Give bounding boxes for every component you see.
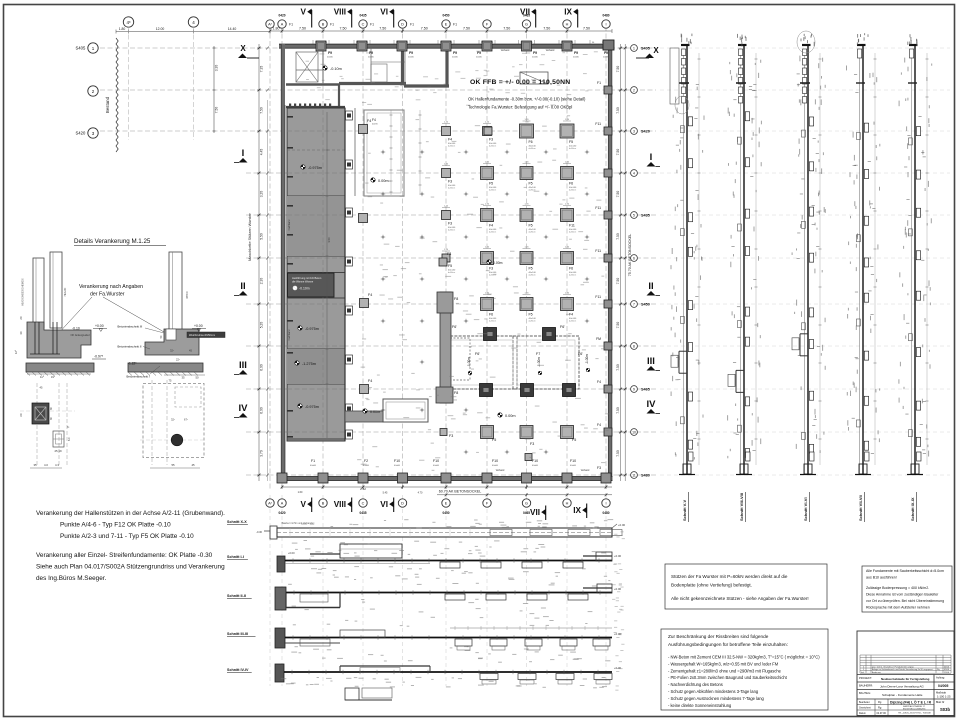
svg-text:VIII: VIII xyxy=(334,500,346,509)
svg-text:S03b: S03b xyxy=(940,707,950,712)
svg-text:7.50: 7.50 xyxy=(616,107,620,114)
svg-text:Schnitt II-II: Schnitt II-II xyxy=(227,594,246,598)
svg-text:F6: F6 xyxy=(569,267,573,271)
svg-text:50: 50 xyxy=(195,376,199,380)
svg-text:F6': F6' xyxy=(452,325,457,329)
svg-text:BAUHERR:: BAUHERR: xyxy=(859,684,873,688)
svg-text:Verband: Verband xyxy=(581,469,590,472)
svg-text:A: A xyxy=(281,23,284,27)
svg-text:9: 9 xyxy=(633,388,635,392)
svg-text:Verankerung aller Einzel- Stre: Verankerung aller Einzel- Streifenfundam… xyxy=(36,552,213,559)
svg-text:Anlage im Grubenbereich und De: Anlage im Grubenbereich und Details Vera… xyxy=(872,668,934,671)
svg-text:7.50: 7.50 xyxy=(616,66,620,73)
svg-text:F6: F6 xyxy=(569,182,573,186)
svg-text:vor Ort zu überprüfen. Bei nic: vor Ort zu überprüfen. Bei nicht Überein… xyxy=(866,599,944,603)
svg-text:B: B xyxy=(322,502,325,506)
svg-text:F3: F3 xyxy=(489,138,493,142)
svg-text:F5: F5 xyxy=(529,313,533,317)
svg-text:Schnitt IX-IX: Schnitt IX-IX xyxy=(910,497,915,521)
svg-text:d=80cm: d=80cm xyxy=(489,145,497,147)
svg-text:F1: F1 xyxy=(311,459,315,463)
svg-text:IPB300: IPB300 xyxy=(187,291,189,299)
svg-text:F4: F4 xyxy=(489,224,493,228)
svg-text:5.50: 5.50 xyxy=(260,233,264,240)
svg-text:-0.30: -0.30 xyxy=(256,530,262,534)
svg-text:+0.00: +0.00 xyxy=(618,523,626,527)
svg-text:F6: F6 xyxy=(489,313,493,317)
svg-text:F4: F4 xyxy=(597,380,601,384)
svg-text:F9: F9 xyxy=(574,51,578,55)
svg-text:Schnitt V-V: Schnitt V-V xyxy=(682,500,687,521)
svg-text:14.40: 14.40 xyxy=(228,27,237,31)
svg-text:Schnitt III-III: Schnitt III-III xyxy=(227,632,248,636)
svg-text:Schnitt VII-VII: Schnitt VII-VII xyxy=(858,495,863,521)
svg-text:die Wanne Wanne: die Wanne Wanne xyxy=(292,280,314,284)
svg-text:40x80: 40x80 xyxy=(452,56,459,58)
svg-text:V: V xyxy=(301,7,307,16)
svg-text:-0.10m: -0.10m xyxy=(330,67,342,71)
svg-text:d=80cm: d=80cm xyxy=(569,148,577,150)
svg-text:F5: F5 xyxy=(489,182,493,186)
svg-text:d=80cm: d=80cm xyxy=(529,320,537,322)
svg-text:7.50: 7.50 xyxy=(379,27,386,31)
svg-text:F9: F9 xyxy=(369,51,373,55)
svg-text:40x80: 40x80 xyxy=(532,465,539,467)
svg-text:-0.975m: -0.975m xyxy=(308,166,322,170)
svg-text:H: H xyxy=(566,502,569,506)
svg-text:+0.00: +0.00 xyxy=(194,324,203,328)
svg-text:A: A xyxy=(281,502,284,506)
svg-text:7.50: 7.50 xyxy=(215,107,219,114)
svg-text:II: II xyxy=(240,281,245,292)
svg-text:VII: VII xyxy=(530,508,540,517)
svg-text:III: III xyxy=(647,356,655,367)
svg-text:0480: 0480 xyxy=(602,14,609,18)
svg-text:6.00: 6.00 xyxy=(260,407,264,414)
svg-text:Zulässige Bodenpressung = 400: Zulässige Bodenpressung = 400 kN/m2. xyxy=(866,586,929,590)
svg-text:F6': F6' xyxy=(475,352,480,356)
svg-text:d=80cm: d=80cm xyxy=(489,189,497,191)
svg-text:- Wassergehalt W=165kg/m3, w/z: - Wassergehalt W=165kg/m3, w/z=0.55 mit … xyxy=(668,661,779,666)
svg-text:Schnitt X-X: Schnitt X-X xyxy=(227,520,247,524)
svg-text:F5: F5 xyxy=(448,264,452,268)
svg-text:I: I xyxy=(242,148,245,159)
svg-text:d=80cm: d=80cm xyxy=(448,145,456,147)
svg-text:Neubau Gebäude für Fertigstell: Neubau Gebäude für Fertigstellung xyxy=(881,677,930,681)
svg-text:III: III xyxy=(239,360,247,371)
svg-text:d=80cm: d=80cm xyxy=(529,274,537,276)
svg-text:Alle Fundamente mit Sauberkeit: Alle Fundamente mit Sauberkeitsschicht d… xyxy=(866,569,944,573)
svg-text:VII: VII xyxy=(520,7,530,16)
svg-text:Punkte A/2-3 und 7-11 - Typ F5: Punkte A/2-3 und 7-11 - Typ F5 OK Platte… xyxy=(60,533,194,540)
svg-text:OK Hallenfundamente -0.30m bzw: OK Hallenfundamente -0.30m bzw. +/-0.00(… xyxy=(468,97,586,102)
svg-text:0.00m: 0.00m xyxy=(493,261,503,265)
svg-text:- keine direkte Sonneneinstrah: - keine direkte Sonneneinstrahlung xyxy=(668,703,732,708)
svg-text:Auftrag: Auftrag xyxy=(936,676,945,680)
svg-text:30: 30 xyxy=(19,331,23,335)
svg-text:G: G xyxy=(525,23,528,27)
svg-text:D: D xyxy=(401,502,404,506)
svg-text:Bodenplatte (ohne Vertiefung): Bodenplatte (ohne Vertiefung) befestigt. xyxy=(671,583,752,588)
svg-text:Betonierabschnitt II: Betonierabschnitt II xyxy=(118,345,142,349)
svg-text:HEA240: HEA240 xyxy=(64,287,67,296)
svg-text:Technologie Fa.Wurster: Befest: Technologie Fa.Wurster: Befestigung auf … xyxy=(468,105,572,110)
svg-text:3.50: 3.50 xyxy=(327,237,331,243)
svg-text:d=80cm: d=80cm xyxy=(448,187,456,189)
svg-text:F2: F2 xyxy=(364,459,368,463)
svg-text:7.50: 7.50 xyxy=(503,27,510,31)
svg-text:- Schutz gegen Abkühlen mindes: - Schutz gegen Abkühlen mindestens 3-Tag… xyxy=(668,689,759,694)
svg-text:F8: F8 xyxy=(454,297,458,301)
svg-text:-0.10m: -0.10m xyxy=(299,287,310,291)
svg-text:1-100 1-25: 1-100 1-25 xyxy=(937,695,951,699)
svg-text:32⁵: 32⁵ xyxy=(170,349,174,353)
svg-text:40x80: 40x80 xyxy=(603,56,610,58)
svg-text:F1: F1 xyxy=(330,23,334,27)
svg-text:7.50: 7.50 xyxy=(463,27,470,31)
svg-text:F3: F3 xyxy=(447,252,451,256)
svg-text:Stützen der Fa Wurster mit P=6: Stützen der Fa Wurster mit P=60kN werden… xyxy=(671,574,788,579)
svg-text:40x80: 40x80 xyxy=(476,56,483,58)
svg-text:Datum: Datum xyxy=(859,712,866,715)
svg-text:7.50: 7.50 xyxy=(616,364,620,371)
svg-text:7: 7 xyxy=(633,303,635,307)
svg-text:S420: S420 xyxy=(76,131,86,136)
svg-text:25,19: 25,19 xyxy=(55,449,62,453)
svg-text:04/005: 04/005 xyxy=(938,684,948,688)
svg-text:Weichzulrste Ø150mm: Weichzulrste Ø150mm xyxy=(189,333,215,337)
svg-text:S420: S420 xyxy=(641,130,650,134)
svg-text:4ˣ: 4ˣ xyxy=(127,20,132,25)
svg-text:F4: F4 xyxy=(368,379,372,383)
svg-text:F1: F1 xyxy=(289,23,293,27)
svg-text:S465: S465 xyxy=(641,388,650,392)
svg-text:F11: F11 xyxy=(595,206,601,210)
svg-text:Änderung: Änderung xyxy=(872,671,881,674)
svg-text:04.07.06: 04.07.06 xyxy=(877,712,887,715)
svg-text:Betonierabschnitt I: Betonierabschnitt I xyxy=(127,375,150,379)
svg-text:V: V xyxy=(301,500,307,509)
svg-text:40x80: 40x80 xyxy=(492,465,499,467)
svg-text:0480: 0480 xyxy=(602,511,609,515)
svg-text:12/06: 12/06 xyxy=(944,672,950,674)
svg-text:40x80: 40x80 xyxy=(532,56,539,58)
svg-text:E: E xyxy=(445,502,448,506)
svg-text:Betonierabschnitt III: Betonierabschnitt III xyxy=(118,325,143,329)
svg-text:3.30: 3.30 xyxy=(215,65,219,72)
svg-text:F11: F11 xyxy=(569,224,575,228)
svg-text:IV: IV xyxy=(647,399,657,410)
svg-text:F10: F10 xyxy=(433,459,439,463)
svg-text:Zur Beschränkung der Rissbreit: Zur Beschränkung der Rissbreiten sind fo… xyxy=(668,634,769,639)
svg-text:60.70 AK BETONSOCKEL: 60.70 AK BETONSOCKEL xyxy=(439,490,481,494)
svg-text:Schalplan - Fundamente Halle: Schalplan - Fundamente Halle xyxy=(882,693,923,697)
svg-text:5.20: 5.20 xyxy=(260,322,264,329)
svg-text:3⁵: 3⁵ xyxy=(67,425,69,429)
svg-text:VI: VI xyxy=(380,500,388,509)
svg-text:Ind.: Ind. xyxy=(861,672,865,674)
svg-text:John Deere-Lanz Verwaltung AG: John Deere-Lanz Verwaltung AG xyxy=(880,685,924,689)
svg-text:-0.975m: -0.975m xyxy=(305,405,319,409)
svg-text:7.50: 7.50 xyxy=(616,233,620,240)
svg-text:F11: F11 xyxy=(595,249,601,253)
svg-text:F9: F9 xyxy=(453,51,457,55)
svg-text:4: 4 xyxy=(633,172,635,176)
svg-text:1: 1 xyxy=(633,47,635,51)
svg-text:des Ing.Büros M.Seeger.: des Ing.Büros M.Seeger. xyxy=(36,575,107,582)
svg-text:75.70 AK BETONSOCKEL: 75.70 AK BETONSOCKEL xyxy=(628,234,632,276)
svg-text:Verband: Verband xyxy=(496,469,505,472)
svg-text:d=80cm: d=80cm xyxy=(529,231,537,233)
svg-text:F9: F9 xyxy=(604,51,608,55)
svg-text:2.30: 2.30 xyxy=(260,278,264,285)
svg-text:31⁵: 31⁵ xyxy=(51,375,55,379)
svg-text:S405: S405 xyxy=(76,46,86,51)
svg-text:7.50: 7.50 xyxy=(421,27,428,31)
svg-text:B: B xyxy=(322,23,325,27)
svg-text:11⁵: 11⁵ xyxy=(40,375,44,379)
svg-text:F1: F1 xyxy=(410,23,414,27)
svg-text:11: 11 xyxy=(632,474,636,478)
svg-text:F4: F4 xyxy=(569,313,573,317)
svg-text:32⁵: 32⁵ xyxy=(171,418,175,422)
svg-text:0.00m: 0.00m xyxy=(505,414,516,418)
svg-text:+0.00: +0.00 xyxy=(614,587,622,591)
svg-text:F5: F5 xyxy=(569,140,573,144)
svg-text:Fachband: Fachband xyxy=(288,329,291,340)
svg-text:VIII: VIII xyxy=(334,7,346,16)
svg-text:0420: 0420 xyxy=(278,511,285,515)
svg-text:FM: FM xyxy=(596,337,601,341)
svg-text:5.45: 5.45 xyxy=(383,492,388,495)
svg-text:F11: F11 xyxy=(595,122,601,126)
svg-text:BAUTEIL:: BAUTEIL: xyxy=(859,691,871,695)
svg-text:F1: F1 xyxy=(597,81,601,85)
svg-text:F11: F11 xyxy=(595,295,601,299)
svg-text:HEA300/HEB300/HEM300: HEA300/HEB300/HEM300 xyxy=(22,278,25,306)
svg-text:S435: S435 xyxy=(641,214,650,218)
svg-text:40x80: 40x80 xyxy=(368,56,375,58)
svg-text:10: 10 xyxy=(632,431,636,435)
svg-text:40x80: 40x80 xyxy=(433,465,440,467)
svg-text:7.50: 7.50 xyxy=(583,27,590,31)
svg-text:-0.97⁵: -0.97⁵ xyxy=(94,355,104,359)
svg-text:Schnitt IV-IV: Schnitt IV-IV xyxy=(227,668,249,672)
svg-text:d=80cm: d=80cm xyxy=(569,231,577,233)
svg-text:-1.00m: -1.00m xyxy=(585,354,589,364)
svg-text:PROJEKT:: PROJEKT: xyxy=(859,676,872,680)
svg-text:55: 55 xyxy=(171,463,175,467)
svg-text:- Schutz gegen Austrocknen min: - Schutz gegen Austrocknen mindestens 7-… xyxy=(668,696,765,701)
svg-text:Bestand: Bestand xyxy=(105,96,110,113)
svg-text:F7: F7 xyxy=(536,352,540,356)
svg-text:Gezeichnet: Gezeichnet xyxy=(859,706,871,709)
svg-text:-0.10: -0.10 xyxy=(72,327,80,331)
svg-text:45: 45 xyxy=(191,463,195,467)
svg-text:40x80: 40x80 xyxy=(327,56,334,58)
svg-text:Verband: Verband xyxy=(501,49,510,52)
svg-text:OK AnkergLatte I: OK AnkergLatte I xyxy=(71,333,91,337)
svg-text:Details Verankerung M.1.25: Details Verankerung M.1.25 xyxy=(74,238,151,245)
svg-text:D: D xyxy=(401,23,404,27)
svg-text:20: 20 xyxy=(19,316,23,320)
svg-text:F10: F10 xyxy=(532,459,538,463)
svg-text:7.50: 7.50 xyxy=(340,27,347,31)
svg-text:0.00m: 0.00m xyxy=(378,179,389,183)
svg-text:4.3: 4.3 xyxy=(55,463,59,467)
svg-text:TEL.-(0821)-4500737/56 - 70630: TEL.-(0821)-4500737/56 - 7063048 xyxy=(898,713,932,715)
svg-text:Rg: Rg xyxy=(878,705,882,709)
svg-text:1.60: 1.60 xyxy=(298,491,303,494)
svg-text:7.50: 7.50 xyxy=(260,107,264,114)
svg-text:d=80cm: d=80cm xyxy=(448,272,456,274)
svg-text:S405: S405 xyxy=(641,47,650,51)
svg-text:+0.00: +0.00 xyxy=(614,554,622,558)
svg-text:-1.22⁵: -1.22⁵ xyxy=(128,362,137,366)
svg-text:Punkte A/4-6 - Typ F12 OK Plat: Punkte A/4-6 - Typ F12 OK Platte -0.10 xyxy=(60,522,171,529)
svg-text:7.50: 7.50 xyxy=(616,278,620,285)
svg-text:Verankerung nach Angaben: Verankerung nach Angaben xyxy=(79,284,143,290)
svg-text:F9: F9 xyxy=(533,51,537,55)
svg-text:7.50: 7.50 xyxy=(616,191,620,198)
svg-text:Fachband: Fachband xyxy=(288,219,291,230)
svg-text:Schnitt VI-VI: Schnitt VI-VI xyxy=(803,497,808,521)
svg-text:0435: 0435 xyxy=(359,14,366,18)
svg-text:Rücksprache mit dem Aufsteller: Rücksprache mit dem Aufsteller nehmen xyxy=(866,606,930,610)
svg-text:35: 35 xyxy=(181,376,185,380)
svg-text:7.50: 7.50 xyxy=(616,450,620,457)
svg-text:Blatt Nr: Blatt Nr xyxy=(936,701,945,704)
svg-text:- PE-Folien 2x0.3mm zwischen B: - PE-Folien 2x0.3mm zwischen Baugrund un… xyxy=(668,675,788,680)
svg-text:60: 60 xyxy=(19,413,23,417)
svg-text:F1: F1 xyxy=(370,23,374,27)
svg-text:40x80: 40x80 xyxy=(310,465,317,467)
svg-text:67⁵: 67⁵ xyxy=(184,418,188,422)
svg-text:40x80: 40x80 xyxy=(394,465,401,467)
svg-text:4.0: 4.0 xyxy=(44,463,48,467)
svg-text:-1.275m: -1.275m xyxy=(302,362,316,366)
svg-text:F5: F5 xyxy=(529,224,533,228)
svg-text:F10: F10 xyxy=(492,459,498,463)
svg-text:II: II xyxy=(648,281,653,292)
svg-text:2: 2 xyxy=(633,89,635,93)
svg-text:2.42: 2.42 xyxy=(360,487,366,491)
svg-text:12⁵: 12⁵ xyxy=(14,350,18,354)
svg-text:OK FFB = +/- 0.00 = 110,50NN: OK FFB = +/- 0.00 = 110,50NN xyxy=(470,79,570,86)
svg-text:3.70: 3.70 xyxy=(260,450,264,457)
svg-text:6.00: 6.00 xyxy=(260,364,264,371)
svg-text:40x90: 40x90 xyxy=(372,124,379,126)
svg-text:7.50: 7.50 xyxy=(616,322,620,329)
svg-text:X: X xyxy=(653,46,659,55)
svg-text:1.80: 1.80 xyxy=(119,27,126,31)
svg-text:F10: F10 xyxy=(570,459,576,463)
svg-text:7.50: 7.50 xyxy=(543,27,550,31)
svg-text:G: G xyxy=(525,502,528,506)
svg-text:F4: F4 xyxy=(597,423,601,427)
svg-text:7.50: 7.50 xyxy=(616,149,620,156)
svg-text:Schnitt VIII-VIII: Schnitt VIII-VIII xyxy=(739,493,744,521)
svg-text:E: E xyxy=(445,23,448,27)
svg-text:12.00: 12.00 xyxy=(156,27,165,31)
svg-text:F3: F3 xyxy=(489,267,493,271)
svg-text:F6: F6 xyxy=(529,140,533,144)
svg-text:40x80: 40x80 xyxy=(363,465,370,467)
svg-text:F9: F9 xyxy=(409,51,413,55)
svg-text:F1: F1 xyxy=(453,23,457,27)
svg-text:0450: 0450 xyxy=(442,511,449,515)
svg-text:6: 6 xyxy=(633,257,635,261)
svg-text:I: I xyxy=(605,502,606,506)
svg-text:- Zementgehalt z1=280l/m3 ohne: - Zementgehalt z1=280l/m3 ohne und =290l… xyxy=(668,668,782,673)
svg-text:F4: F4 xyxy=(372,118,376,122)
svg-text:d=80cm: d=80cm xyxy=(569,274,577,276)
svg-text:40x80: 40x80 xyxy=(573,56,580,58)
svg-text:F5: F5 xyxy=(492,438,496,442)
svg-text:7.50: 7.50 xyxy=(616,407,620,414)
svg-text:Verankerung der Hallenstützen: Verankerung der Hallenstützen in der Ach… xyxy=(36,510,225,517)
svg-text:35: 35 xyxy=(33,463,37,467)
svg-text:7.50: 7.50 xyxy=(299,27,306,31)
svg-text:8: 8 xyxy=(633,345,635,349)
svg-text:d=80cm: d=80cm xyxy=(569,189,577,191)
svg-text:IX: IX xyxy=(564,7,572,16)
svg-text:89233 NEU-ULM/BURG: 89233 NEU-ULM/BURG xyxy=(903,709,926,711)
svg-text:I: I xyxy=(605,23,606,27)
svg-text:- NW-Beton mit Zement CEM III: - NW-Beton mit Zement CEM III 32.5-NW = … xyxy=(668,655,820,660)
svg-text:F6': F6' xyxy=(578,352,583,356)
svg-text:C: C xyxy=(362,502,365,506)
svg-text:Sauber mit 5m und Verbands I: Sauber mit 5m und Verbands I xyxy=(282,522,315,525)
svg-text:04/06: 04/06 xyxy=(944,666,950,668)
svg-text:4.45: 4.45 xyxy=(260,149,264,156)
svg-text:C: C xyxy=(362,23,365,27)
svg-text:0450: 0450 xyxy=(442,14,449,18)
svg-text:VI: VI xyxy=(380,7,388,16)
svg-text:Schnitt I-I: Schnitt I-I xyxy=(227,555,244,559)
svg-text:F5: F5 xyxy=(529,267,533,271)
svg-text:5: 5 xyxy=(633,214,635,218)
svg-text:Diese Annahme ist vom zuständi: Diese Annahme ist vom zuständigen Baulei… xyxy=(866,593,939,597)
svg-text:4.70: 4.70 xyxy=(418,492,423,495)
svg-text:d=80cm: d=80cm xyxy=(489,320,497,322)
svg-text:+0.00: +0.00 xyxy=(95,324,104,328)
svg-text:3.20: 3.20 xyxy=(260,191,264,198)
svg-text:-1.00m: -1.00m xyxy=(467,357,471,367)
svg-text:F3: F3 xyxy=(448,222,452,226)
svg-text:I: I xyxy=(650,152,653,163)
svg-text:22⁵: 22⁵ xyxy=(176,358,180,362)
svg-text:+0.00: +0.00 xyxy=(288,551,295,555)
svg-text:F5: F5 xyxy=(529,182,533,186)
svg-text:05/06: 05/06 xyxy=(944,669,950,671)
svg-text:F10: F10 xyxy=(394,459,400,463)
svg-text:d=80cm: d=80cm xyxy=(569,320,577,322)
svg-text:gez. techn. Grundriss / Fundam: gez. techn. Grundriss / Fundamente angep… xyxy=(872,665,915,668)
svg-text:6.0: 6.0 xyxy=(68,437,71,441)
svg-text:1.80: 1.80 xyxy=(273,27,280,31)
svg-text:Rg: Rg xyxy=(878,700,882,704)
svg-text:d=80cm: d=80cm xyxy=(489,231,497,233)
svg-text:F3: F3 xyxy=(530,442,534,446)
svg-text:7.35: 7.35 xyxy=(260,66,264,73)
svg-text:F4: F4 xyxy=(367,119,371,123)
svg-text:Bearbeitet: Bearbeitet xyxy=(859,701,870,704)
svg-text:Verband: Verband xyxy=(546,49,555,52)
svg-text:- Nachverdichtung des Betons: - Nachverdichtung des Betons xyxy=(668,682,723,687)
svg-text:F9: F9 xyxy=(328,51,332,55)
svg-text:aus B10 ausführen!: aus B10 ausführen! xyxy=(866,576,897,580)
